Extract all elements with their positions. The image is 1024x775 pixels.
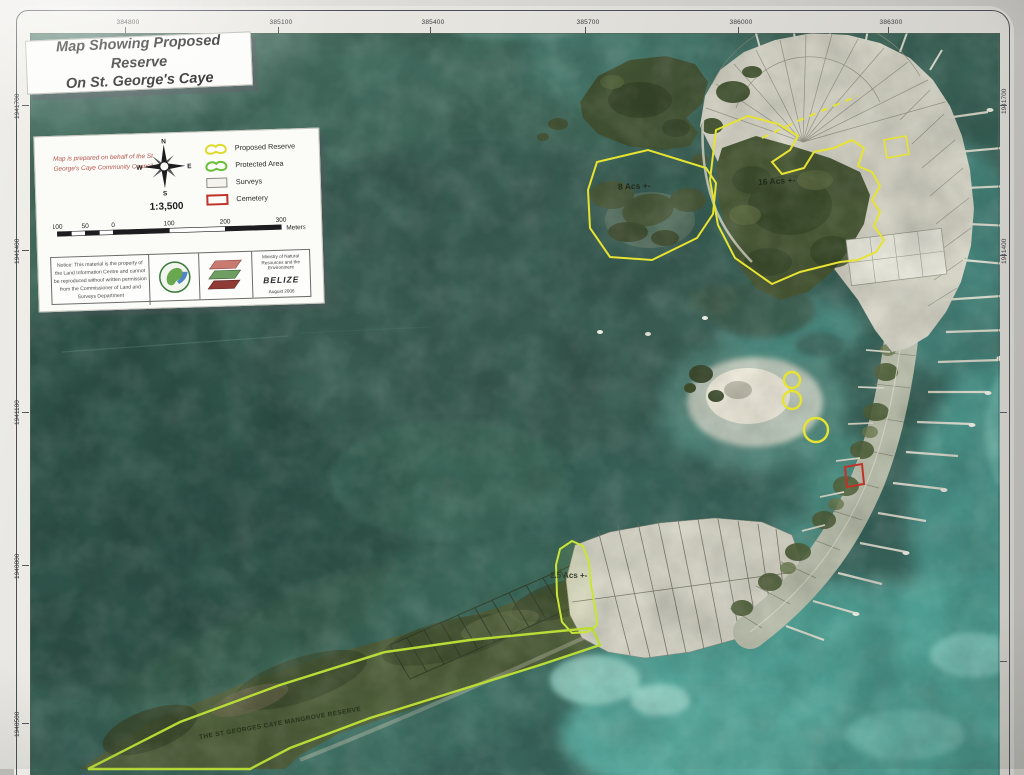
protected-area-swatch-icon — [203, 158, 229, 173]
legend-credits: Notice: This material is the property of… — [50, 249, 311, 305]
svg-text:100: 100 — [53, 224, 63, 231]
scale-ratio: 1:3,500 — [36, 197, 296, 216]
grid-tick — [738, 27, 739, 34]
grid-tick — [125, 27, 126, 34]
grid-tick — [430, 27, 431, 34]
svg-text:N: N — [161, 138, 166, 145]
svg-text:200: 200 — [220, 218, 231, 225]
compass-rose-icon: N S E W — [134, 137, 194, 197]
legend-item-label: Proposed Reserve — [235, 141, 296, 152]
acreage-label-8acs: 8 Acs +- — [618, 180, 651, 191]
svg-text:W: W — [136, 165, 143, 172]
land-information-centre-logo — [149, 253, 201, 301]
grid-tick — [585, 27, 586, 34]
grid-tick — [22, 250, 29, 251]
grid-tick — [1000, 105, 1007, 106]
surveys-swatch-icon — [204, 175, 230, 190]
grid-label-right-1: 1941700 — [1001, 83, 1013, 119]
svg-text:E: E — [187, 163, 192, 170]
grid-label-left-2: 1941400 — [14, 233, 26, 269]
legend-item-label: Protected Area — [235, 159, 284, 170]
grid-tick — [22, 723, 29, 724]
copyright-notice: Notice: This material is the property of… — [51, 255, 150, 308]
globe-logo-icon — [156, 259, 193, 296]
grid-label-left-1: 1941700 — [14, 88, 26, 124]
grid-label-top-2: 385100 — [266, 19, 296, 26]
svg-text:50: 50 — [81, 223, 89, 230]
svg-text:S: S — [163, 190, 168, 196]
grid-tick — [1000, 661, 1007, 662]
grid-tick — [1000, 255, 1007, 256]
map-title-box: Map Showing Proposed Reserve On St. Geor… — [25, 31, 253, 94]
publication-date: August 2006 — [269, 289, 295, 295]
grid-label-top-5: 386000 — [726, 19, 756, 26]
grid-label-left-4: 1940800 — [14, 548, 26, 584]
photograph-of-map: 384800 385100 385400 385700 386000 38630… — [0, 0, 1024, 769]
grid-label-left-5: 1940500 — [14, 706, 26, 742]
proposed-reserve-swatch-icon — [203, 141, 229, 156]
ministry-credit: Ministry of Natural Resources and the En… — [252, 250, 311, 298]
acreage-label-2-5acs: 2.5 Acs +- — [550, 571, 587, 580]
ministry-name: Ministry of Natural Resources and the En… — [252, 252, 310, 272]
legend-item-label: Surveys — [236, 176, 263, 186]
grid-label-right-2: 1941400 — [1001, 233, 1013, 269]
grid-tick — [1000, 412, 1007, 413]
acreage-label-16acs: 16 Acs +- — [758, 175, 796, 187]
svg-text:0: 0 — [111, 222, 115, 229]
grid-tick — [22, 565, 29, 566]
map-sheet: 384800 385100 385400 385700 386000 38630… — [14, 6, 1014, 775]
grid-label-top-6: 386300 — [876, 19, 906, 26]
legend-panel: Map is prepared on behalf of the St Geor… — [33, 128, 324, 313]
grid-tick — [22, 105, 29, 106]
svg-text:100: 100 — [164, 220, 175, 227]
layered-maps-logo — [199, 252, 253, 300]
grid-label-top-4: 385700 — [573, 19, 603, 26]
grid-tick — [22, 412, 29, 413]
svg-text:Meters: Meters — [286, 224, 305, 232]
grid-label-top-3: 385400 — [418, 19, 448, 26]
svg-text:300: 300 — [276, 217, 287, 224]
grid-label-top-1: 384800 — [113, 19, 143, 26]
map-layers-icon — [205, 258, 246, 293]
scale-bar: 100 50 0 100 200 300 Meters — [53, 215, 306, 243]
grid-label-left-3: 1941100 — [14, 395, 26, 431]
grid-tick — [888, 27, 889, 34]
country-name: BELIZE — [263, 275, 300, 286]
grid-tick — [278, 27, 279, 34]
